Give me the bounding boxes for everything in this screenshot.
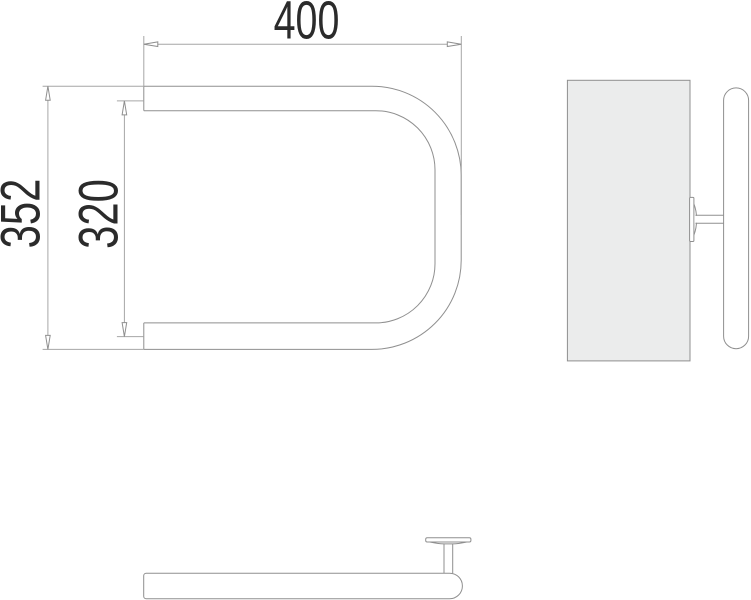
svg-text:320: 320	[66, 179, 129, 249]
svg-text:400: 400	[274, 0, 340, 51]
svg-text:352: 352	[0, 179, 52, 249]
